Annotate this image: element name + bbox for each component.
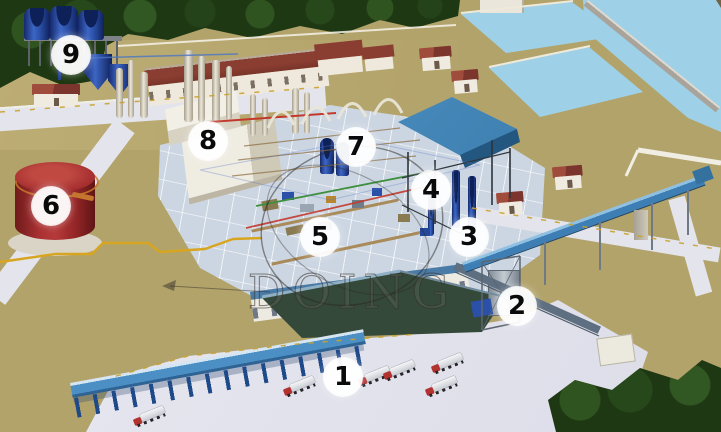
marker-4: 4 [411, 170, 451, 210]
marker-5: 5 [300, 217, 340, 257]
marker-7: 7 [336, 127, 376, 167]
marker-1: 1 [323, 357, 363, 397]
marker-8: 8 [188, 121, 228, 161]
marker-3: 3 [449, 217, 489, 257]
marker-2: 2 [497, 286, 537, 326]
marker-9: 9 [51, 35, 91, 75]
marker-6: 6 [31, 186, 71, 226]
plant-3d-layout: DOING 123456789 [0, 0, 721, 432]
markers-layer: 123456789 [0, 0, 721, 432]
